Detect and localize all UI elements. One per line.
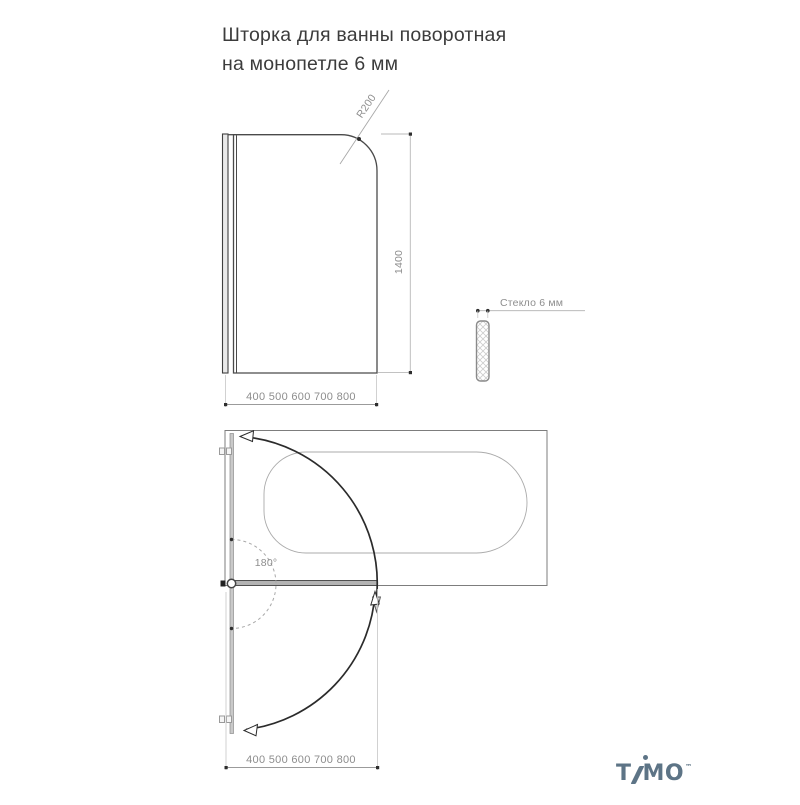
- glass-open-down-position: [230, 587, 234, 734]
- side-view: Стекло 6 мм: [476, 297, 585, 381]
- title-line-2: на монопетле 6 мм: [222, 50, 506, 79]
- wall-bracket: [220, 448, 225, 455]
- technical-drawing: R200 1400 400 500 600 700 800: [0, 0, 800, 800]
- glass-panel-front: [234, 135, 378, 373]
- page-title: Шторка для ванны поворотная на монопетле…: [222, 21, 506, 79]
- logo-i-dot-icon: [643, 755, 648, 760]
- top-view: 180° 400 500 600 700 800: [220, 431, 548, 771]
- logo-letters-mo: MO: [643, 763, 685, 785]
- dimension-height: 1400: [378, 133, 412, 375]
- dimension-width-front: 400 500 600 700 800: [224, 375, 378, 407]
- trademark-symbol: ™: [685, 763, 692, 771]
- width-options-label-plan: 400 500 600 700 800: [246, 754, 356, 766]
- brand-logo: T MO ™: [616, 752, 696, 788]
- front-view: R200 1400 400 500 600 700 800: [223, 90, 413, 407]
- glass-open-up-position: [230, 434, 234, 582]
- glass-thickness-label: Стекло 6 мм: [500, 297, 563, 309]
- hinge-anchor: [221, 581, 226, 587]
- glass-section-bar: [477, 321, 490, 381]
- wall-profile-front: [223, 134, 229, 373]
- pivot-hinge: [227, 579, 235, 587]
- wall-bracket: [227, 716, 232, 723]
- arrowhead: [244, 725, 258, 736]
- wall-bracket: [220, 716, 225, 723]
- logo-letter-t: T: [616, 763, 632, 785]
- dimension-width-plan: 400 500 600 700 800: [225, 589, 380, 770]
- glass-closed-position: [234, 581, 378, 586]
- swing-angle-label: 180°: [255, 557, 278, 569]
- title-line-1: Шторка для ванны поворотная: [222, 21, 506, 50]
- swing-path-lower: [244, 592, 379, 736]
- height-label: 1400: [393, 250, 405, 274]
- wall-bracket: [227, 448, 232, 455]
- page-background: Шторка для ванны поворотная на монопетле…: [0, 0, 800, 800]
- corner-radius-label: R200: [354, 92, 378, 120]
- width-options-label-front: 400 500 600 700 800: [246, 391, 356, 403]
